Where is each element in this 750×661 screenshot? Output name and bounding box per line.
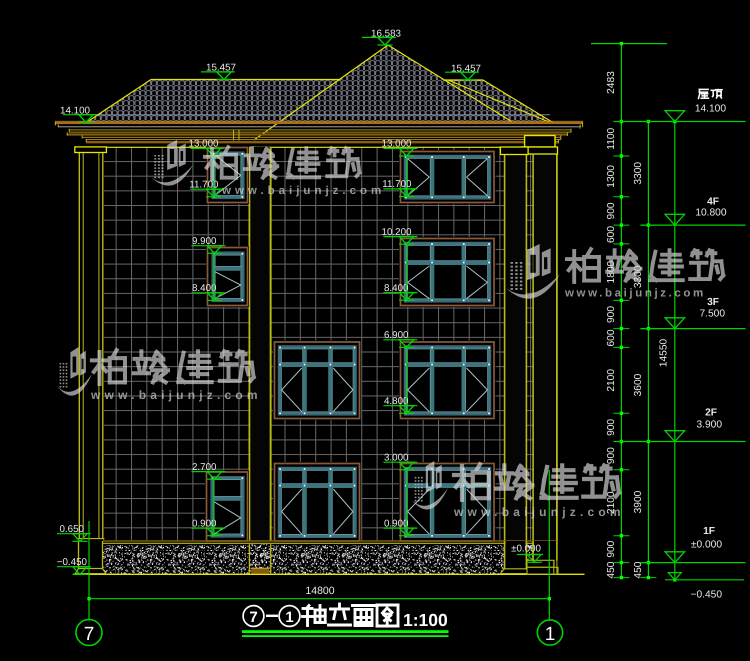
svg-text:4F: 4F	[707, 197, 719, 208]
svg-text:900: 900	[606, 306, 617, 323]
svg-text:900: 900	[606, 202, 617, 219]
svg-text:1F: 1F	[703, 526, 715, 537]
svg-text:1:100: 1:100	[403, 610, 448, 630]
svg-text:www.baijunjz.com: www.baijunjz.com	[90, 388, 262, 402]
svg-text:14800: 14800	[305, 585, 334, 597]
svg-text:2F: 2F	[705, 408, 717, 419]
svg-text:7.500: 7.500	[700, 309, 726, 320]
svg-text:www.baijunjz.com: www.baijunjz.com	[221, 185, 385, 197]
svg-text:900: 900	[606, 447, 617, 464]
svg-text:2100: 2100	[606, 369, 617, 392]
svg-text:±0.000: ±0.000	[691, 540, 722, 551]
svg-text:14550: 14550	[659, 339, 670, 368]
svg-text:2483: 2483	[606, 71, 617, 94]
svg-text:3.900: 3.900	[697, 420, 723, 431]
svg-text:3900: 3900	[633, 490, 644, 513]
svg-text:±0.000: ±0.000	[511, 544, 541, 555]
svg-text:14.100: 14.100	[695, 104, 726, 115]
svg-text:10.800: 10.800	[695, 208, 726, 219]
svg-text:−0.450: −0.450	[691, 590, 723, 601]
svg-text:3F: 3F	[707, 297, 719, 308]
svg-text:600: 600	[606, 226, 617, 243]
svg-text:3600: 3600	[633, 373, 644, 396]
svg-text:1: 1	[285, 609, 293, 626]
svg-text:1100: 1100	[606, 127, 617, 149]
svg-text:450: 450	[633, 561, 644, 578]
svg-text:900: 900	[606, 419, 617, 436]
svg-text:7: 7	[249, 609, 257, 626]
svg-text:www.baijunjz.com: www.baijunjz.com	[453, 505, 625, 519]
svg-text:900: 900	[606, 540, 617, 557]
svg-text:www.baijunjz.com: www.baijunjz.com	[564, 288, 706, 300]
svg-text:600: 600	[606, 329, 617, 346]
svg-text:7: 7	[84, 624, 95, 645]
svg-text:1: 1	[545, 624, 556, 645]
svg-text:450: 450	[606, 561, 617, 578]
svg-text:3300: 3300	[633, 162, 644, 185]
svg-text:1300: 1300	[606, 165, 617, 188]
